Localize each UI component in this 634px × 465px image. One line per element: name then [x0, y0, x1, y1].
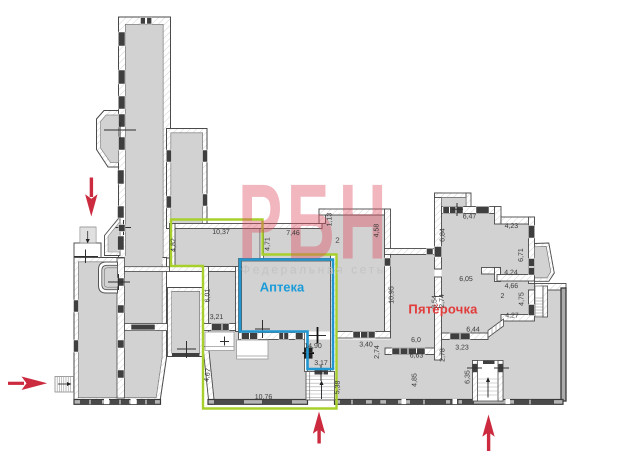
- svg-text:6,63: 6,63: [410, 353, 424, 360]
- svg-text:3,17: 3,17: [314, 360, 328, 367]
- svg-text:4,71: 4,71: [265, 237, 272, 251]
- svg-text:2,74: 2,74: [439, 294, 446, 308]
- svg-text:10,95: 10,95: [389, 286, 396, 304]
- svg-text:14,90: 14,90: [304, 343, 322, 350]
- svg-text:4,24: 4,24: [504, 270, 518, 277]
- svg-text:3,54: 3,54: [432, 295, 439, 309]
- svg-text:3,23: 3,23: [455, 345, 469, 352]
- svg-text:4,66: 4,66: [505, 283, 519, 290]
- svg-text:6,47: 6,47: [463, 214, 477, 221]
- svg-text:4,85: 4,85: [412, 373, 419, 387]
- svg-text:7,46: 7,46: [286, 230, 300, 237]
- svg-text:6,35: 6,35: [465, 370, 472, 384]
- svg-text:3,40: 3,40: [359, 342, 373, 349]
- svg-text:4,82: 4,82: [171, 238, 178, 252]
- svg-text:2,78: 2,78: [440, 348, 447, 362]
- svg-text:4,75: 4,75: [518, 292, 525, 306]
- svg-text:4,58: 4,58: [374, 224, 381, 238]
- svg-text:5,38: 5,38: [334, 380, 342, 394]
- svg-text:3,21: 3,21: [210, 314, 224, 321]
- svg-text:4,23: 4,23: [505, 223, 519, 230]
- svg-text:2,74: 2,74: [374, 345, 381, 359]
- svg-text:6,01: 6,01: [205, 289, 212, 303]
- svg-text:2: 2: [335, 236, 340, 245]
- svg-text:Аптека: Аптека: [260, 280, 305, 295]
- svg-text:6,44: 6,44: [466, 327, 480, 334]
- svg-text:6,84: 6,84: [440, 228, 447, 242]
- svg-text:6,71: 6,71: [518, 248, 525, 262]
- svg-text:4,27: 4,27: [505, 313, 519, 320]
- svg-text:10,76: 10,76: [255, 394, 273, 401]
- svg-text:6,0: 6,0: [411, 337, 421, 344]
- svg-text:10,37: 10,37: [212, 229, 230, 236]
- svg-text:6,05: 6,05: [459, 276, 473, 283]
- svg-text:Федеральная сеть: Федеральная сеть: [241, 263, 386, 277]
- svg-text:2: 2: [501, 293, 505, 300]
- svg-text:1,13: 1,13: [327, 213, 334, 227]
